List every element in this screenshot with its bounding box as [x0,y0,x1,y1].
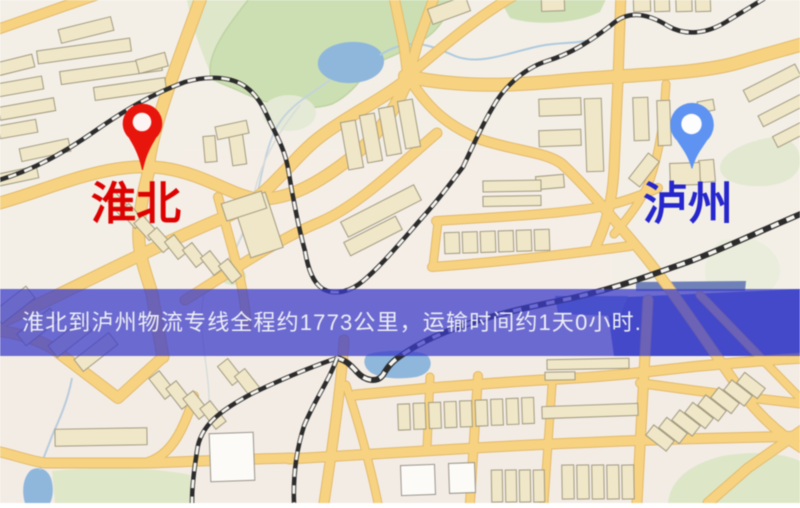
svg-text:泸州: 泸州 [643,178,733,229]
svg-text:淮北到泸州物流专线全程约1773公里，运输时间约1天0小时.: 淮北到泸州物流专线全程约1773公里，运输时间约1天0小时. [22,310,642,335]
svg-text:淮北: 淮北 [91,178,181,229]
